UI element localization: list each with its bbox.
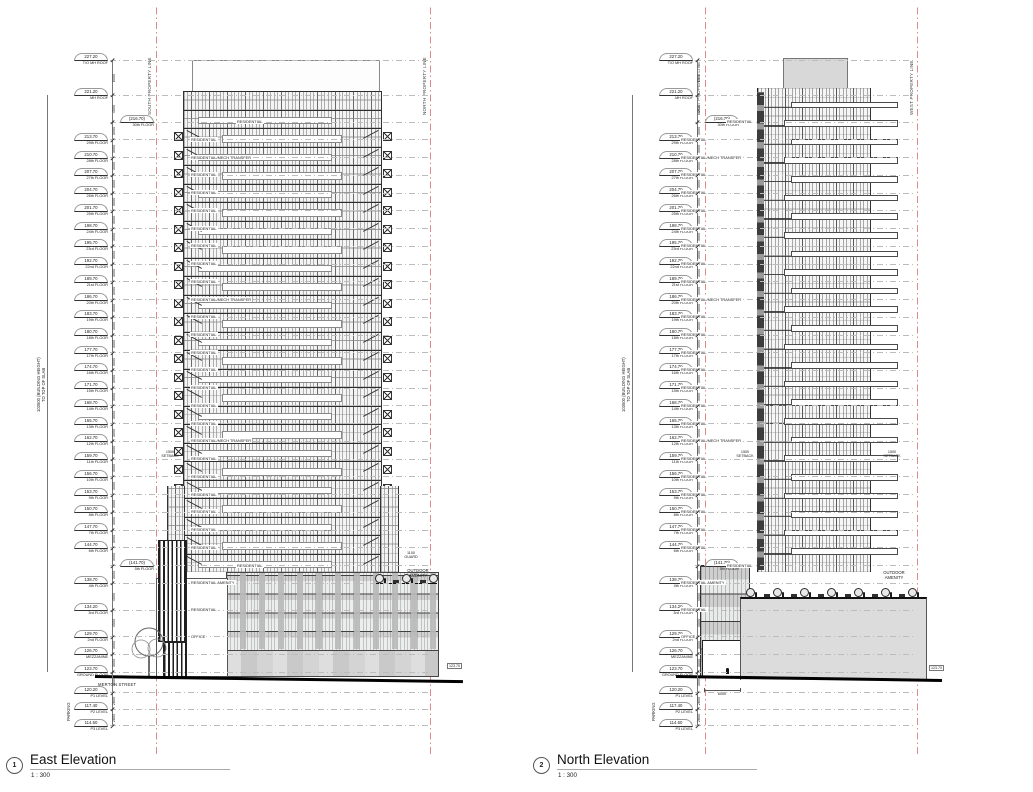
level-value: 126.70 (659, 647, 693, 655)
level-leader-line (110, 210, 428, 211)
level-leader-line (110, 441, 428, 442)
north-amenity-label: OUTDOOR AMENITY (872, 570, 916, 580)
balcony-slab (791, 362, 898, 369)
floor-use-label: RESIDENTIAL AMENITY (190, 580, 236, 585)
floor-slab-line (184, 165, 381, 166)
level-marker: (141.70)5th FLOOR (120, 559, 154, 572)
floor-dim-text: 6000 (112, 65, 116, 91)
level-name: T/O MH ROOF (659, 61, 693, 66)
balcony-guard-panel (174, 169, 183, 178)
level-marker: 171.7015th FLOOR (74, 381, 108, 394)
level-name: P3 LEVEL (659, 727, 693, 732)
facade-brace (363, 297, 378, 306)
elevation-sheet: SOUTH PROPERTY LINE NORTH PROPERTY LINE … (0, 0, 1033, 792)
level-leader-line (110, 610, 428, 611)
facade-brace (363, 408, 378, 417)
balcony-band (198, 487, 332, 495)
level-name: MH ROOF (74, 96, 108, 101)
level-value: 117.40 (659, 702, 693, 710)
level-marker: 138.704th FLOOR (74, 576, 108, 589)
level-value: 177.70 (74, 346, 108, 354)
level-leader-line (695, 636, 915, 637)
floor-slab-line (184, 498, 381, 499)
balcony-guard-panel (383, 151, 392, 160)
floor-use-label: RESIDENTIAL (190, 350, 218, 355)
level-value: 153.70 (74, 488, 108, 496)
facade-brace (363, 426, 378, 435)
level-marker: 180.7018th FLOOR (74, 328, 108, 341)
planter-silhouette (872, 594, 878, 597)
shrub-silhouette (881, 588, 890, 597)
view-scale-east: 1 : 300 (31, 772, 50, 779)
floor-use-label: RESIDENTIAL (680, 492, 708, 497)
level-leader-line (110, 654, 428, 655)
planter-silhouette (818, 594, 824, 597)
level-marker: 207.7027th FLOOR (74, 168, 108, 181)
balcony-band (222, 246, 342, 254)
shrub-silhouette (375, 574, 384, 583)
east-amenity-label: OUTDOOR AMENITY (396, 568, 440, 578)
shrub-silhouette (908, 588, 917, 597)
floor-slab-line (184, 110, 381, 111)
person-silhouette (809, 592, 811, 597)
level-marker: 177.7017th FLOOR (74, 346, 108, 359)
floor-dim-text: 2800 (697, 705, 701, 731)
level-leader-line (110, 299, 428, 300)
level-name: 16th FLOOR (74, 371, 108, 376)
floor-use-label: RESIDENTIAL (236, 119, 264, 124)
level-value: 159.70 (74, 452, 108, 460)
shrub-silhouette (854, 588, 863, 597)
floor-use-label: RESIDENTIAL (726, 119, 754, 124)
title-rule (30, 769, 230, 770)
level-marker: 114.60P3 LEVEL (659, 719, 693, 732)
level-leader-line (110, 583, 428, 584)
level-leader-line (695, 654, 915, 655)
level-value: 213.70 (74, 133, 108, 141)
floor-dim-text: 4500 (697, 584, 701, 610)
north-setback-dim-right: 1500 SETBACK (880, 450, 904, 458)
level-leader-line (110, 175, 428, 176)
balcony-band (198, 302, 332, 310)
floor-use-label: RESIDENTIAL (680, 607, 708, 612)
level-leader-line (695, 352, 915, 353)
floor-use-label: RESIDENTIAL (680, 474, 708, 479)
level-name: MEZZANINE (74, 655, 108, 660)
facade-brace (363, 463, 378, 472)
balcony-slab (791, 288, 898, 295)
level-leader-line (695, 281, 915, 282)
level-marker: 123.70GROUND FLOOR (74, 665, 108, 678)
shrub-silhouette (827, 588, 836, 597)
floor-use-label: RESIDENTIAL/MECH TRANSFER (190, 297, 252, 302)
floor-use-label: RESIDENTIAL (190, 332, 218, 337)
level-marker: 114.60P3 LEVEL (74, 719, 108, 732)
balcony-band (198, 265, 332, 273)
level-leader-line (110, 565, 428, 566)
level-leader-line (695, 423, 915, 424)
level-name: 13th FLOOR (74, 425, 108, 430)
level-name: 24th FLOOR (74, 230, 108, 235)
level-marker: 156.7010th FLOOR (74, 470, 108, 483)
balcony-slab (784, 530, 898, 537)
balcony-slab (784, 381, 898, 388)
facade-brace (363, 278, 378, 287)
level-leader-line (695, 709, 915, 710)
floor-slab-line (184, 461, 381, 462)
level-value: 204.70 (74, 186, 108, 194)
floor-use-label: OFFICE (680, 634, 696, 639)
balcony-band (198, 450, 332, 458)
balcony-guard-panel (174, 336, 183, 345)
north-setback-dim-left: 1500 SETBACK (733, 450, 757, 458)
floor-use-label: RESIDENTIAL (726, 563, 754, 568)
level-marker: 129.702nd FLOOR (74, 630, 108, 643)
level-name: 6th FLOOR (74, 549, 108, 554)
level-marker: 201.7025th FLOOR (74, 204, 108, 217)
level-marker: 159.7011th FLOOR (74, 452, 108, 465)
level-marker: 183.7019th FLOOR (74, 310, 108, 323)
floor-use-label: RESIDENTIAL (190, 456, 218, 461)
floor-use-label: OFFICE (190, 634, 206, 639)
level-leader-line (110, 547, 428, 548)
shrub-silhouette (773, 588, 782, 597)
level-value: 186.70 (74, 293, 108, 301)
level-value: 195.70 (74, 239, 108, 247)
building-height-dim-text: 103500 (BUILDING HEIGHT) TO TOP OF SLAB (36, 310, 46, 460)
level-leader-line (110, 264, 428, 265)
balcony-guard-panel (383, 243, 392, 252)
level-leader-line (695, 610, 915, 611)
level-value: 189.70 (74, 275, 108, 283)
shrub-silhouette (746, 588, 755, 597)
level-name: P3 LEVEL (74, 727, 108, 732)
facade-brace (187, 426, 202, 435)
facade-brace (363, 482, 378, 491)
level-leader-line (695, 95, 915, 96)
level-marker: 153.709th FLOOR (74, 488, 108, 501)
floor-use-label: RESIDENTIAL/MECH TRANSFER (190, 438, 252, 443)
north-tower-facade (757, 88, 871, 572)
balcony-band (198, 413, 332, 421)
level-name: 28th FLOOR (74, 159, 108, 164)
facade-brace (363, 556, 378, 565)
level-value: 117.40 (74, 702, 108, 710)
level-name: 18th FLOOR (74, 336, 108, 341)
balcony-guard-panel (174, 428, 183, 437)
level-marker: 123.70GROUND FLOOR (659, 665, 693, 678)
level-value: 138.70 (74, 576, 108, 584)
balcony-band (198, 117, 332, 125)
balcony-band (222, 394, 342, 402)
balcony-slab (791, 176, 898, 183)
east-mech-penthouse (192, 60, 380, 92)
floor-use-label: RESIDENTIAL (190, 190, 218, 195)
level-marker: 195.7023rd FLOOR (74, 239, 108, 252)
floor-use-label: RESIDENTIAL (190, 403, 218, 408)
level-value: 192.70 (74, 257, 108, 265)
floor-use-label: RESIDENTIAL/MECH TRANSFER (190, 155, 252, 160)
balcony-guard-panel (174, 151, 183, 160)
level-name: 17th FLOOR (74, 354, 108, 359)
level-leader-line (695, 672, 915, 673)
level-leader-line (110, 512, 428, 513)
level-marker: 162.7012th FLOOR (74, 434, 108, 447)
floor-use-label: RESIDENTIAL (680, 190, 708, 195)
level-name: 11th FLOOR (74, 460, 108, 465)
facade-brace (363, 537, 378, 546)
balcony-guard-panel (383, 336, 392, 345)
parking-label: PARKING (66, 694, 71, 730)
level-leader-line (110, 317, 428, 318)
level-name: GROUND FLOOR (659, 673, 693, 678)
view-number-2: 2 (533, 757, 550, 774)
balcony-band (222, 283, 342, 291)
planter-silhouette (845, 594, 851, 597)
level-name: GROUND FLOOR (74, 673, 108, 678)
level-leader-line (695, 692, 915, 693)
level-name: 12th FLOOR (74, 442, 108, 447)
level-name: 8th FLOOR (74, 513, 108, 518)
level-name: 14th FLOOR (74, 407, 108, 412)
floor-use-label: RESIDENTIAL (190, 385, 218, 390)
floor-slab-line (184, 147, 381, 148)
level-marker: 198.7024th FLOOR (74, 222, 108, 235)
floor-use-label: RESIDENTIAL (190, 137, 218, 142)
floor-use-label: RESIDENTIAL (236, 563, 264, 568)
level-marker: 227.20T/O MH ROOF (74, 53, 108, 66)
balcony-band (198, 376, 332, 384)
level-marker: 147.707th FLOOR (74, 523, 108, 536)
view-number-1: 1 (6, 757, 23, 774)
balcony-slab (791, 325, 898, 332)
floor-use-label: RESIDENTIAL (190, 474, 218, 479)
level-leader-line (110, 709, 428, 710)
floor-use-label: RESIDENTIAL (680, 367, 708, 372)
facade-brace (363, 204, 378, 213)
floor-use-label: RESIDENTIAL (190, 208, 218, 213)
level-value: 114.60 (659, 719, 693, 727)
view-scale-north: 1 : 300 (558, 772, 577, 779)
level-leader-line (695, 264, 915, 265)
view-title-north: North Elevation (557, 752, 649, 767)
floor-use-label: RESIDENTIAL (680, 403, 708, 408)
balcony-guard-panel (174, 391, 183, 400)
level-leader-line (110, 139, 428, 140)
level-leader-line (110, 60, 428, 61)
balcony-band (222, 431, 342, 439)
level-leader-line (110, 725, 428, 726)
level-leader-line (695, 175, 915, 176)
level-leader-line (695, 494, 915, 495)
level-leader-line (695, 228, 915, 229)
floor-use-label: RESIDENTIAL AMENITY (680, 580, 726, 585)
balcony-guard-panel (174, 317, 183, 326)
floor-use-label: RESIDENTIAL (190, 509, 218, 514)
level-leader-line (110, 636, 428, 637)
floor-use-label: RESIDENTIAL (190, 607, 218, 612)
level-value: 165.70 (74, 417, 108, 425)
floor-slab-line (184, 91, 381, 92)
floor-use-label: RESIDENTIAL (190, 172, 218, 177)
level-marker: 120.20P1 LEVEL (659, 686, 693, 699)
title-rule (557, 769, 757, 770)
level-value: 147.70 (74, 523, 108, 531)
level-value: 180.70 (74, 328, 108, 336)
balcony-guard-panel (174, 354, 183, 363)
floor-slab-line (184, 239, 381, 240)
level-name: 30th FLOOR (120, 123, 154, 128)
level-value: 168.70 (74, 399, 108, 407)
floor-dim-text: 2800 (112, 705, 116, 731)
balcony-guard-panel (383, 354, 392, 363)
floor-use-label: RESIDENTIAL/MECH TRANSFER (680, 297, 742, 302)
level-marker: 204.7026th FLOOR (74, 186, 108, 199)
level-name: 9th FLOOR (74, 496, 108, 501)
balcony-slab (791, 102, 898, 109)
balcony-slab (784, 269, 898, 276)
balcony-guard-panel (383, 410, 392, 419)
floor-use-label: RESIDENTIAL (680, 350, 708, 355)
level-marker: 174.7016th FLOOR (74, 363, 108, 376)
level-leader-line (110, 476, 428, 477)
floor-slab-line (184, 276, 381, 277)
floor-use-label: RESIDENTIAL (680, 226, 708, 231)
level-value: 221.20 (659, 88, 693, 96)
level-value: 120.20 (659, 686, 693, 694)
level-leader-line (110, 672, 428, 673)
floor-use-label: RESIDENTIAL (680, 314, 708, 319)
level-value: 114.60 (74, 719, 108, 727)
floor-slab-line (184, 480, 381, 481)
balcony-band (222, 320, 342, 328)
level-leader-line (110, 281, 428, 282)
level-value: 162.70 (74, 434, 108, 442)
level-leader-line (110, 423, 428, 424)
level-name: 22nd FLOOR (74, 265, 108, 270)
level-value: 221.20 (74, 88, 108, 96)
person-silhouette (890, 592, 892, 597)
level-leader-line (695, 583, 915, 584)
facade-brace (363, 389, 378, 398)
facade-brace (363, 371, 378, 380)
planter-silhouette (791, 594, 797, 597)
balcony-slab (784, 157, 898, 164)
level-marker: 117.40P2 LEVEL (74, 702, 108, 715)
floor-use-label: RESIDENTIAL (680, 261, 708, 266)
level-marker: 227.20T/O MH ROOF (659, 53, 693, 66)
floor-use-label: RESIDENTIAL/MECH TRANSFER (680, 438, 742, 443)
level-value: 201.70 (74, 204, 108, 212)
floor-use-label: RESIDENTIAL (190, 367, 218, 372)
level-value: 183.70 (74, 310, 108, 318)
balcony-guard-panel (383, 428, 392, 437)
level-leader-line (110, 530, 428, 531)
east-setback-dim: 1500 SETBACK (158, 450, 182, 458)
floor-slab-line (184, 258, 381, 259)
planter-silhouette (899, 594, 905, 597)
level-leader-line (695, 459, 915, 460)
floor-use-label: RESIDENTIAL (680, 137, 708, 142)
level-marker: 221.20MH ROOF (74, 88, 108, 101)
balcony-band (222, 357, 342, 365)
level-leader-line (110, 459, 428, 460)
level-value: 126.70 (74, 647, 108, 655)
floor-use-label: RESIDENTIAL (190, 261, 218, 266)
person-silhouette (917, 592, 919, 597)
floor-use-label: RESIDENTIAL (190, 545, 218, 550)
level-value: 144.70 (74, 541, 108, 549)
balcony-band (222, 468, 342, 476)
floor-use-label: RESIDENTIAL (680, 456, 708, 461)
level-name: 15th FLOOR (74, 389, 108, 394)
balcony-guard-panel (174, 373, 183, 382)
floor-slab-line (184, 554, 381, 555)
north-mech-penthouse (783, 58, 848, 92)
level-value: (141.70) (120, 559, 154, 567)
level-marker: 189.7021st FLOOR (74, 275, 108, 288)
level-name: 21st FLOOR (74, 283, 108, 288)
level-name: 19th FLOOR (74, 318, 108, 323)
person-silhouette (863, 592, 865, 597)
level-marker: 210.7028th FLOOR (74, 151, 108, 164)
level-name: 20th FLOOR (74, 301, 108, 306)
floor-dim-text: 4500 (112, 584, 116, 610)
level-value: (216.70) (120, 115, 154, 123)
level-value: 207.70 (74, 168, 108, 176)
level-value: 150.70 (74, 505, 108, 513)
balcony-guard-panel (383, 447, 392, 456)
floor-use-label: RESIDENTIAL (680, 172, 708, 177)
shrub-silhouette (800, 588, 809, 597)
building-height-dim-line (47, 95, 48, 672)
level-marker: 126.70MEZZANINE (659, 647, 693, 660)
level-value: 210.70 (74, 151, 108, 159)
facade-brace (363, 352, 378, 361)
balcony-guard-panel (174, 465, 183, 474)
level-leader-line (110, 228, 428, 229)
north-spot-elevation: 123.70 (929, 665, 944, 671)
level-marker: (216.70)30th FLOOR (120, 115, 154, 128)
level-name: T/O MH ROOF (74, 61, 108, 66)
level-leader-line (110, 692, 428, 693)
person-silhouette (755, 592, 757, 597)
floor-use-label: RESIDENTIAL (680, 421, 708, 426)
level-name: P2 LEVEL (659, 710, 693, 715)
level-leader-line (110, 335, 428, 336)
level-leader-line (110, 494, 428, 495)
level-leader-line (695, 476, 915, 477)
level-marker: 150.708th FLOOR (74, 505, 108, 518)
floor-use-label: RESIDENTIAL (680, 279, 708, 284)
level-value: 134.20 (74, 603, 108, 611)
floor-use-label: RESIDENTIAL (190, 226, 218, 231)
level-leader-line (110, 122, 428, 123)
level-name: 25th FLOOR (74, 212, 108, 217)
level-leader-line (695, 335, 915, 336)
facade-brace (363, 149, 378, 158)
level-name: 27th FLOOR (74, 176, 108, 181)
level-leader-line (695, 388, 915, 389)
floor-slab-line (184, 535, 381, 536)
level-name: 7th FLOOR (74, 531, 108, 536)
balcony-band (198, 339, 332, 347)
east-spot-elevation: 123.70 (447, 663, 462, 669)
floor-use-label: RESIDENTIAL (680, 332, 708, 337)
level-name: 23rd FLOOR (74, 247, 108, 252)
level-name: 4th FLOOR (74, 584, 108, 589)
north-amenity-deck (744, 589, 924, 598)
